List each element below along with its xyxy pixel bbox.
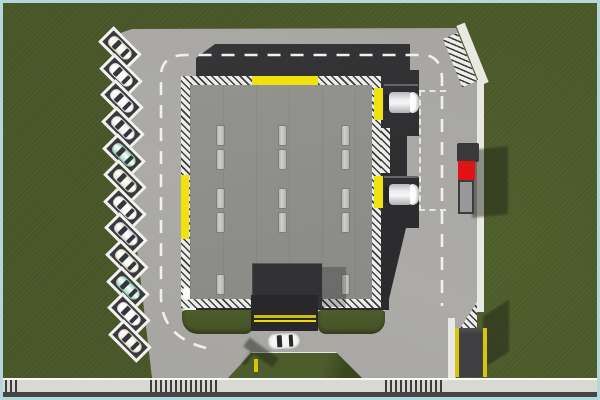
car-windshield (277, 335, 283, 347)
car-windshield (120, 279, 131, 290)
car-windshield (119, 253, 130, 264)
car-rear-window (125, 208, 135, 218)
car-windshield (122, 333, 133, 344)
truck-cab (410, 184, 419, 205)
car-rear-window (127, 261, 137, 271)
car-windshield (118, 226, 129, 237)
car-rear-window (130, 341, 140, 351)
trailer-body (389, 92, 412, 113)
car-rear-window (121, 75, 131, 85)
car-rear-window (124, 155, 134, 165)
depot-scene (0, 0, 600, 400)
car-windshield (112, 40, 123, 51)
car-rear-window (120, 48, 130, 58)
car-rear-window (129, 314, 139, 324)
trailer-body (389, 184, 412, 205)
car-rear-window (128, 288, 138, 298)
loading-dock-trailer-2[interactable] (384, 183, 419, 206)
car-rear-window (125, 181, 135, 191)
car-windshield (121, 306, 132, 317)
white-car[interactable] (268, 332, 301, 350)
car-rear-window (123, 128, 133, 138)
truck-cab (410, 92, 419, 113)
car-rear-window (289, 335, 294, 347)
car-rear-window (122, 101, 132, 111)
car-windshield (113, 93, 124, 104)
car-windshield (116, 173, 127, 184)
car-windshield (112, 66, 123, 77)
car-windshield (114, 119, 125, 130)
car-windshield (117, 199, 128, 210)
car-rear-window (126, 234, 136, 244)
utility-shed[interactable] (455, 328, 487, 377)
red-truck-trailer (458, 180, 474, 214)
loading-dock-trailer-1[interactable] (384, 91, 419, 114)
red-cab-truck[interactable] (456, 143, 480, 219)
car-windshield (115, 146, 126, 157)
truck-front (457, 143, 479, 162)
bollard (254, 359, 258, 372)
red-truck-cab (458, 161, 475, 180)
dock-staging-box (419, 90, 446, 211)
